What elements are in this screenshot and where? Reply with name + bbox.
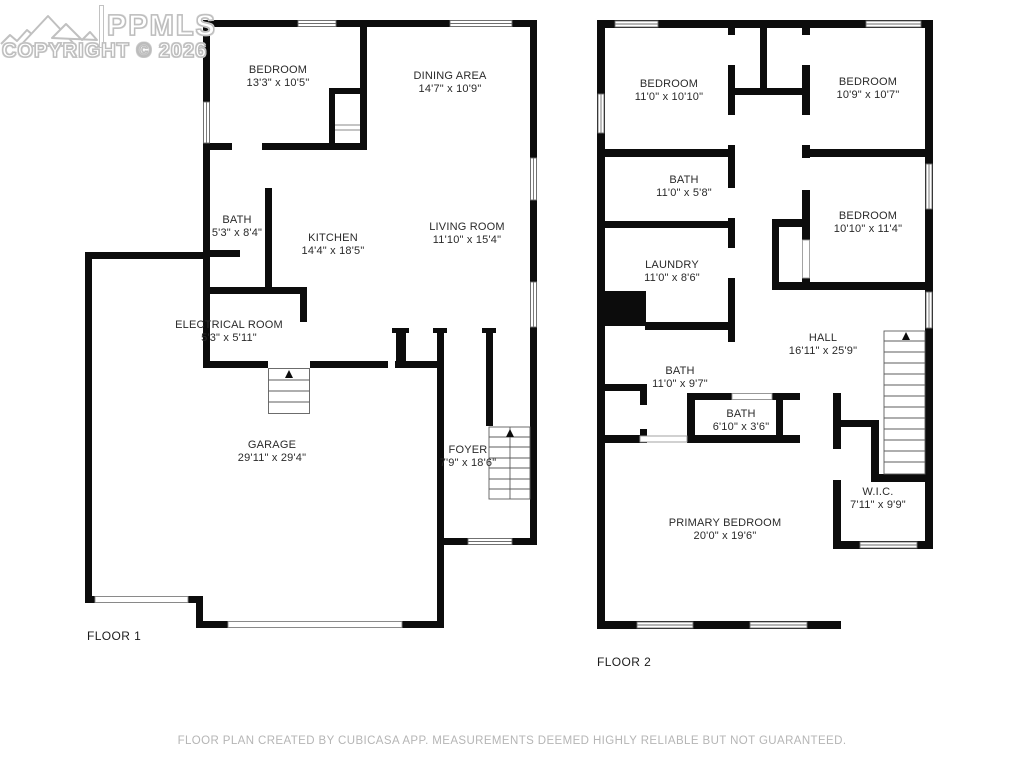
room-label-bath-mid-f2: BATH 11'0" x 9'7" xyxy=(652,365,708,391)
room-label-laundry: LAUNDRY 11'0" x 8'6" xyxy=(644,259,700,285)
room-label-bath-small-f2: BATH 6'10" x 3'6" xyxy=(713,408,770,434)
room-label-wic: W.I.C. 7'11" x 9'9" xyxy=(850,486,906,512)
room-label-bedroom1-f2: BEDROOM 11'0" x 10'10" xyxy=(635,78,703,104)
floor1-garage-stairs xyxy=(269,369,310,414)
floor1-walls xyxy=(85,20,537,628)
room-label-bedroom-f1: BEDROOM 13'3" x 10'5" xyxy=(247,64,310,90)
room-label-hall: HALL 16'11" x 25'9" xyxy=(789,332,857,358)
room-label-foyer: FOYER 7'9" x 18'6" xyxy=(440,444,497,470)
floor1-garage-doors xyxy=(95,597,402,628)
footer-disclaimer: FLOOR PLAN CREATED BY CUBICASA APP. MEAS… xyxy=(0,735,1024,747)
room-label-bedroom2-f2: BEDROOM 10'9" x 10'7" xyxy=(837,76,900,102)
room-label-primary-bedroom: PRIMARY BEDROOM 20'0" x 19'6" xyxy=(669,517,782,543)
room-label-living-room: LIVING ROOM 11'10" x 15'4" xyxy=(429,221,505,247)
room-label-kitchen: KITCHEN 14'4" x 18'5" xyxy=(302,232,365,258)
watermark: PPMLS COPYRIGHT © 2026 xyxy=(0,0,220,80)
up-arrow-icon xyxy=(285,370,293,378)
room-label-bedroom3-f2: BEDROOM 10'10" x 11'4" xyxy=(834,210,902,236)
floor1-closet-shelves xyxy=(335,125,360,130)
room-label-electrical-room: ELECTRICAL ROOM 5'3" x 5'11" xyxy=(175,319,283,345)
room-label-bath-f1: BATH 5'3" x 8'4" xyxy=(212,214,262,240)
floor1-label: FLOOR 1 xyxy=(87,629,141,643)
floorplan-page: BEDROOM 13'3" x 10'5" DINING AREA 14'7" … xyxy=(0,0,1024,767)
floor2-stairs xyxy=(884,331,925,474)
watermark-copyright: COPYRIGHT © 2026 xyxy=(2,40,207,63)
room-label-bath-upper-f2: BATH 11'0" x 5'8" xyxy=(656,174,712,200)
up-arrow-icon xyxy=(902,332,910,340)
room-label-garage: GARAGE 29'11" x 29'4" xyxy=(238,439,306,465)
floorplan-drawing xyxy=(0,0,1024,767)
up-arrow-icon xyxy=(506,429,514,437)
room-label-dining-area: DINING AREA 14'7" x 10'9" xyxy=(413,70,486,96)
floor2-label: FLOOR 2 xyxy=(597,655,651,669)
watermark-brand: PPMLS xyxy=(107,10,217,43)
